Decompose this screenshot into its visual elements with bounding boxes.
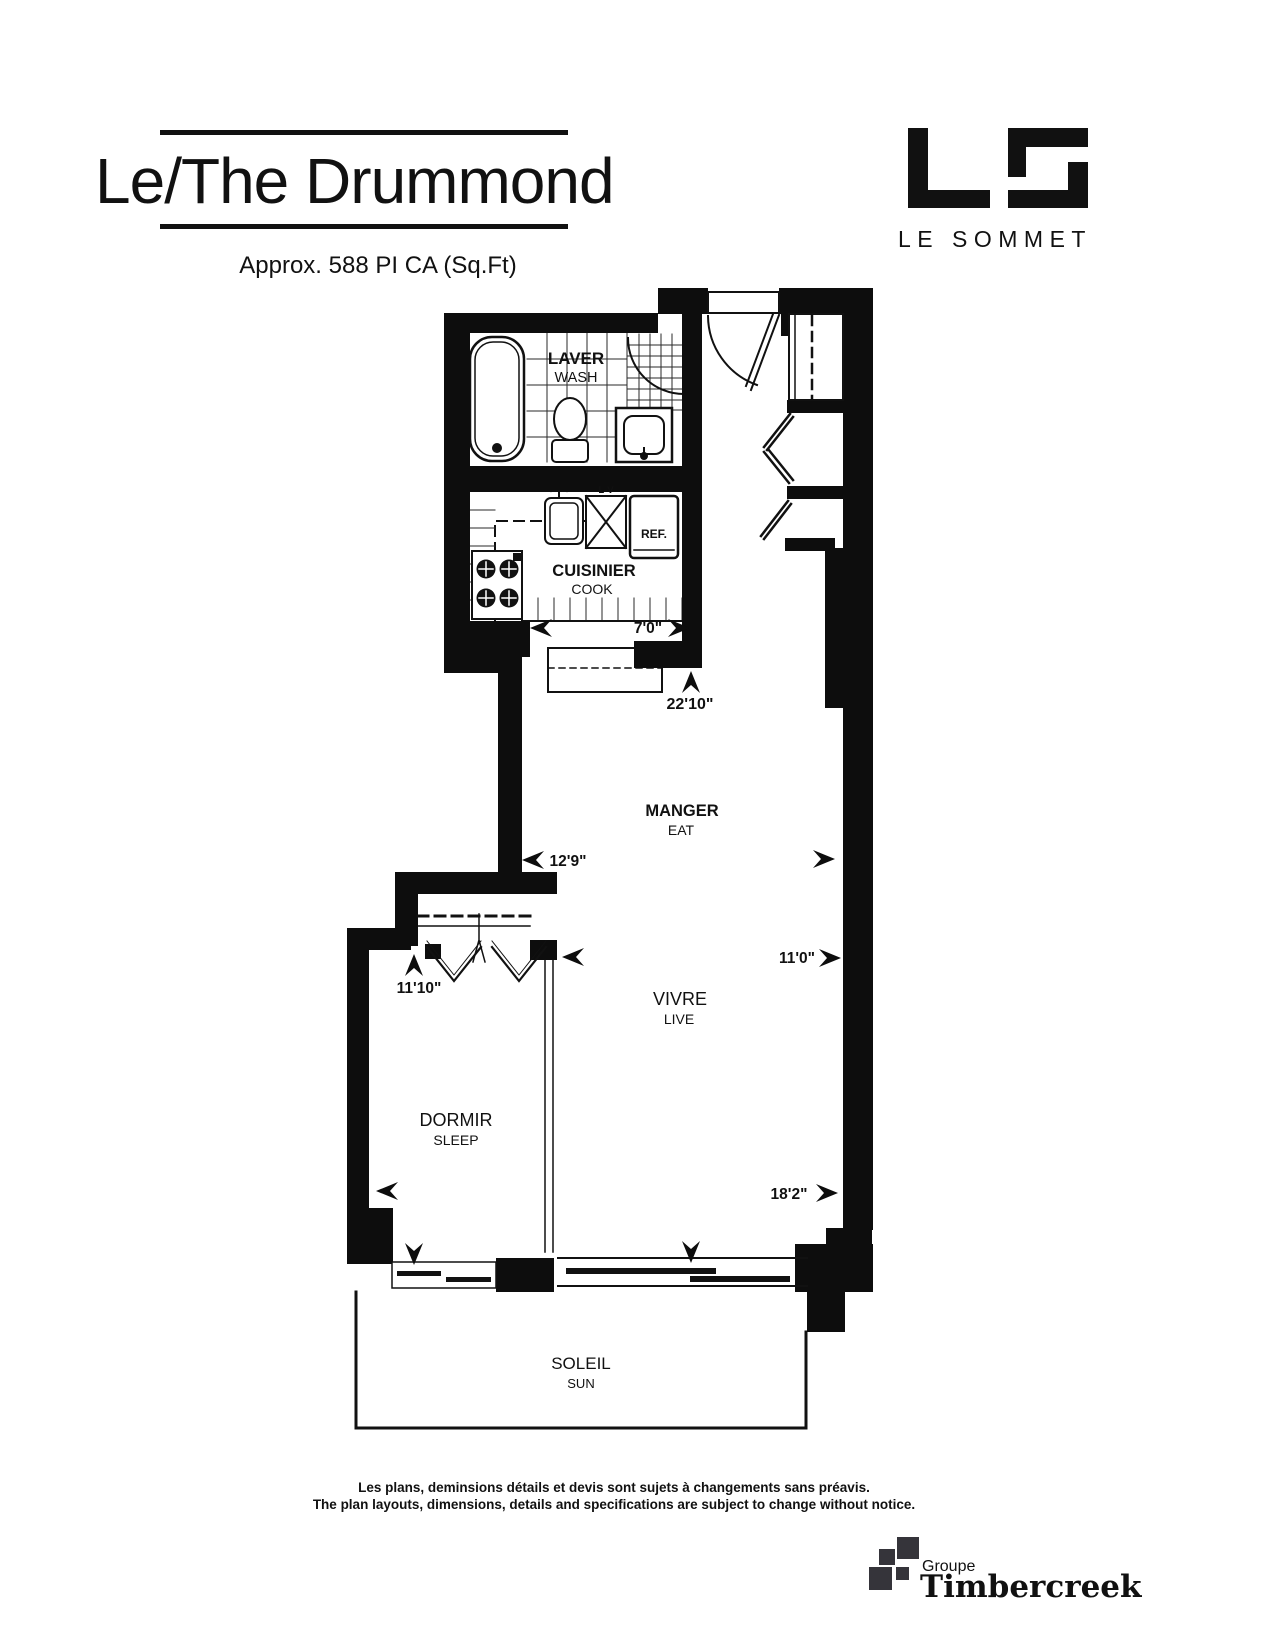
dishwasher-label: L-V (598, 485, 614, 496)
stove-icon (472, 551, 522, 619)
arrow-up-icon (405, 954, 423, 976)
logo-square-icon (896, 1567, 909, 1580)
dim-live-width: 11'0" (779, 950, 815, 967)
room-label-live-en: LIVE (664, 1011, 694, 1027)
bedroom-window-sash-2 (446, 1277, 491, 1282)
logo-square-icon (869, 1567, 892, 1590)
header: Le/The Drummond Approx. 588 PI CA (Sq.Ft… (95, 130, 614, 279)
dimension-arrows (376, 619, 841, 1265)
arrow-left-icon (562, 948, 584, 966)
lesommet-wordmark: LE SOMMET (898, 226, 1092, 252)
room-label-live-fr: VIVRE (653, 989, 707, 1009)
room-label-wash-fr: LAVER (548, 349, 604, 368)
title-rule-bottom (160, 224, 568, 229)
tub-drain-icon (492, 443, 502, 453)
arrow-right-icon (813, 850, 835, 868)
disclaimer-fr: Les plans, deminsions détails et devis s… (358, 1480, 870, 1495)
page-subtitle: Approx. 588 PI CA (Sq.Ft) (239, 252, 516, 279)
floor-plan: LAVER WASH CUISINIER COOK MANGER EAT VIV… (347, 288, 873, 1428)
living-window-sash-1 (566, 1268, 716, 1274)
floorplan-page: { "header": { "title": "Le/The Drummond"… (0, 0, 1275, 1650)
arrow-right-icon (819, 949, 841, 967)
room-label-sun-fr: SOLEIL (551, 1354, 611, 1373)
disclaimer-en: The plan layouts, dimensions, details an… (313, 1497, 915, 1512)
toilet-icon (554, 398, 586, 440)
counter-ticks-bottom (538, 598, 682, 621)
closet-pull-line (473, 914, 485, 962)
page-title: Le/The Drummond (95, 145, 614, 217)
entry-closet (789, 314, 843, 400)
title-rule-top (160, 130, 568, 135)
entry-area (708, 292, 843, 539)
arrow-right-icon (816, 1184, 838, 1202)
entry-bifold-doors (764, 414, 793, 483)
bedroom-closet (418, 914, 553, 1252)
walls (347, 288, 873, 1332)
logo-square-icon (879, 1549, 895, 1565)
dim-unit-width: 18'2" (771, 1186, 808, 1203)
room-label-wash-en: WASH (555, 370, 598, 386)
floorplan-canvas: Le/The Drummond Approx. 588 PI CA (Sq.Ft… (0, 0, 1275, 1650)
bathtub-icon (470, 337, 524, 461)
toilet-tank-icon (552, 440, 588, 462)
bedroom-partition-wall (545, 960, 553, 1252)
room-label-cook-fr: CUISINIER (552, 562, 636, 580)
room-label-sleep-en: SLEEP (433, 1132, 478, 1148)
arrow-up-icon (682, 671, 700, 693)
dim-eat-width: 12'9" (550, 853, 587, 870)
fridge-label: REF. (641, 527, 667, 541)
arrow-left-icon (522, 851, 544, 869)
room-label-sleep-fr: DORMIR (420, 1110, 493, 1130)
living-window-sash-2 (690, 1276, 790, 1282)
bathroom-door-arc (628, 338, 684, 394)
room-label-eat-fr: MANGER (645, 802, 718, 820)
arrow-left-icon (376, 1182, 398, 1200)
dim-unit-depth: 22'10" (667, 696, 714, 713)
timbercreek-logo: Groupe Timbercreek (869, 1537, 1143, 1605)
kitchen-fixtures (472, 482, 678, 620)
dim-kitchen-width: 7'0" (634, 620, 662, 637)
entry-door-frame (708, 292, 779, 313)
dim-sleep-width: 11'10" (397, 980, 442, 997)
entry-door-leaf (746, 314, 779, 390)
room-label-cook-en: COOK (571, 581, 613, 597)
logo-l-glyph-icon (908, 128, 990, 208)
sink-tap-icon (640, 452, 648, 460)
arrow-down-icon (682, 1241, 700, 1263)
windows-balcony (356, 1258, 807, 1428)
room-label-eat-en: EAT (668, 822, 695, 838)
lesommet-logo: LE SOMMET (898, 128, 1092, 252)
bedroom-window-sash-1 (397, 1271, 441, 1276)
entry-angled-door (761, 501, 791, 539)
room-label-sun-en: SUN (567, 1376, 594, 1391)
logo-square-icon (897, 1537, 919, 1559)
timbercreek-wordmark: Timbercreek (920, 1569, 1143, 1605)
footer: Les plans, deminsions détails et devis s… (313, 1480, 1143, 1605)
